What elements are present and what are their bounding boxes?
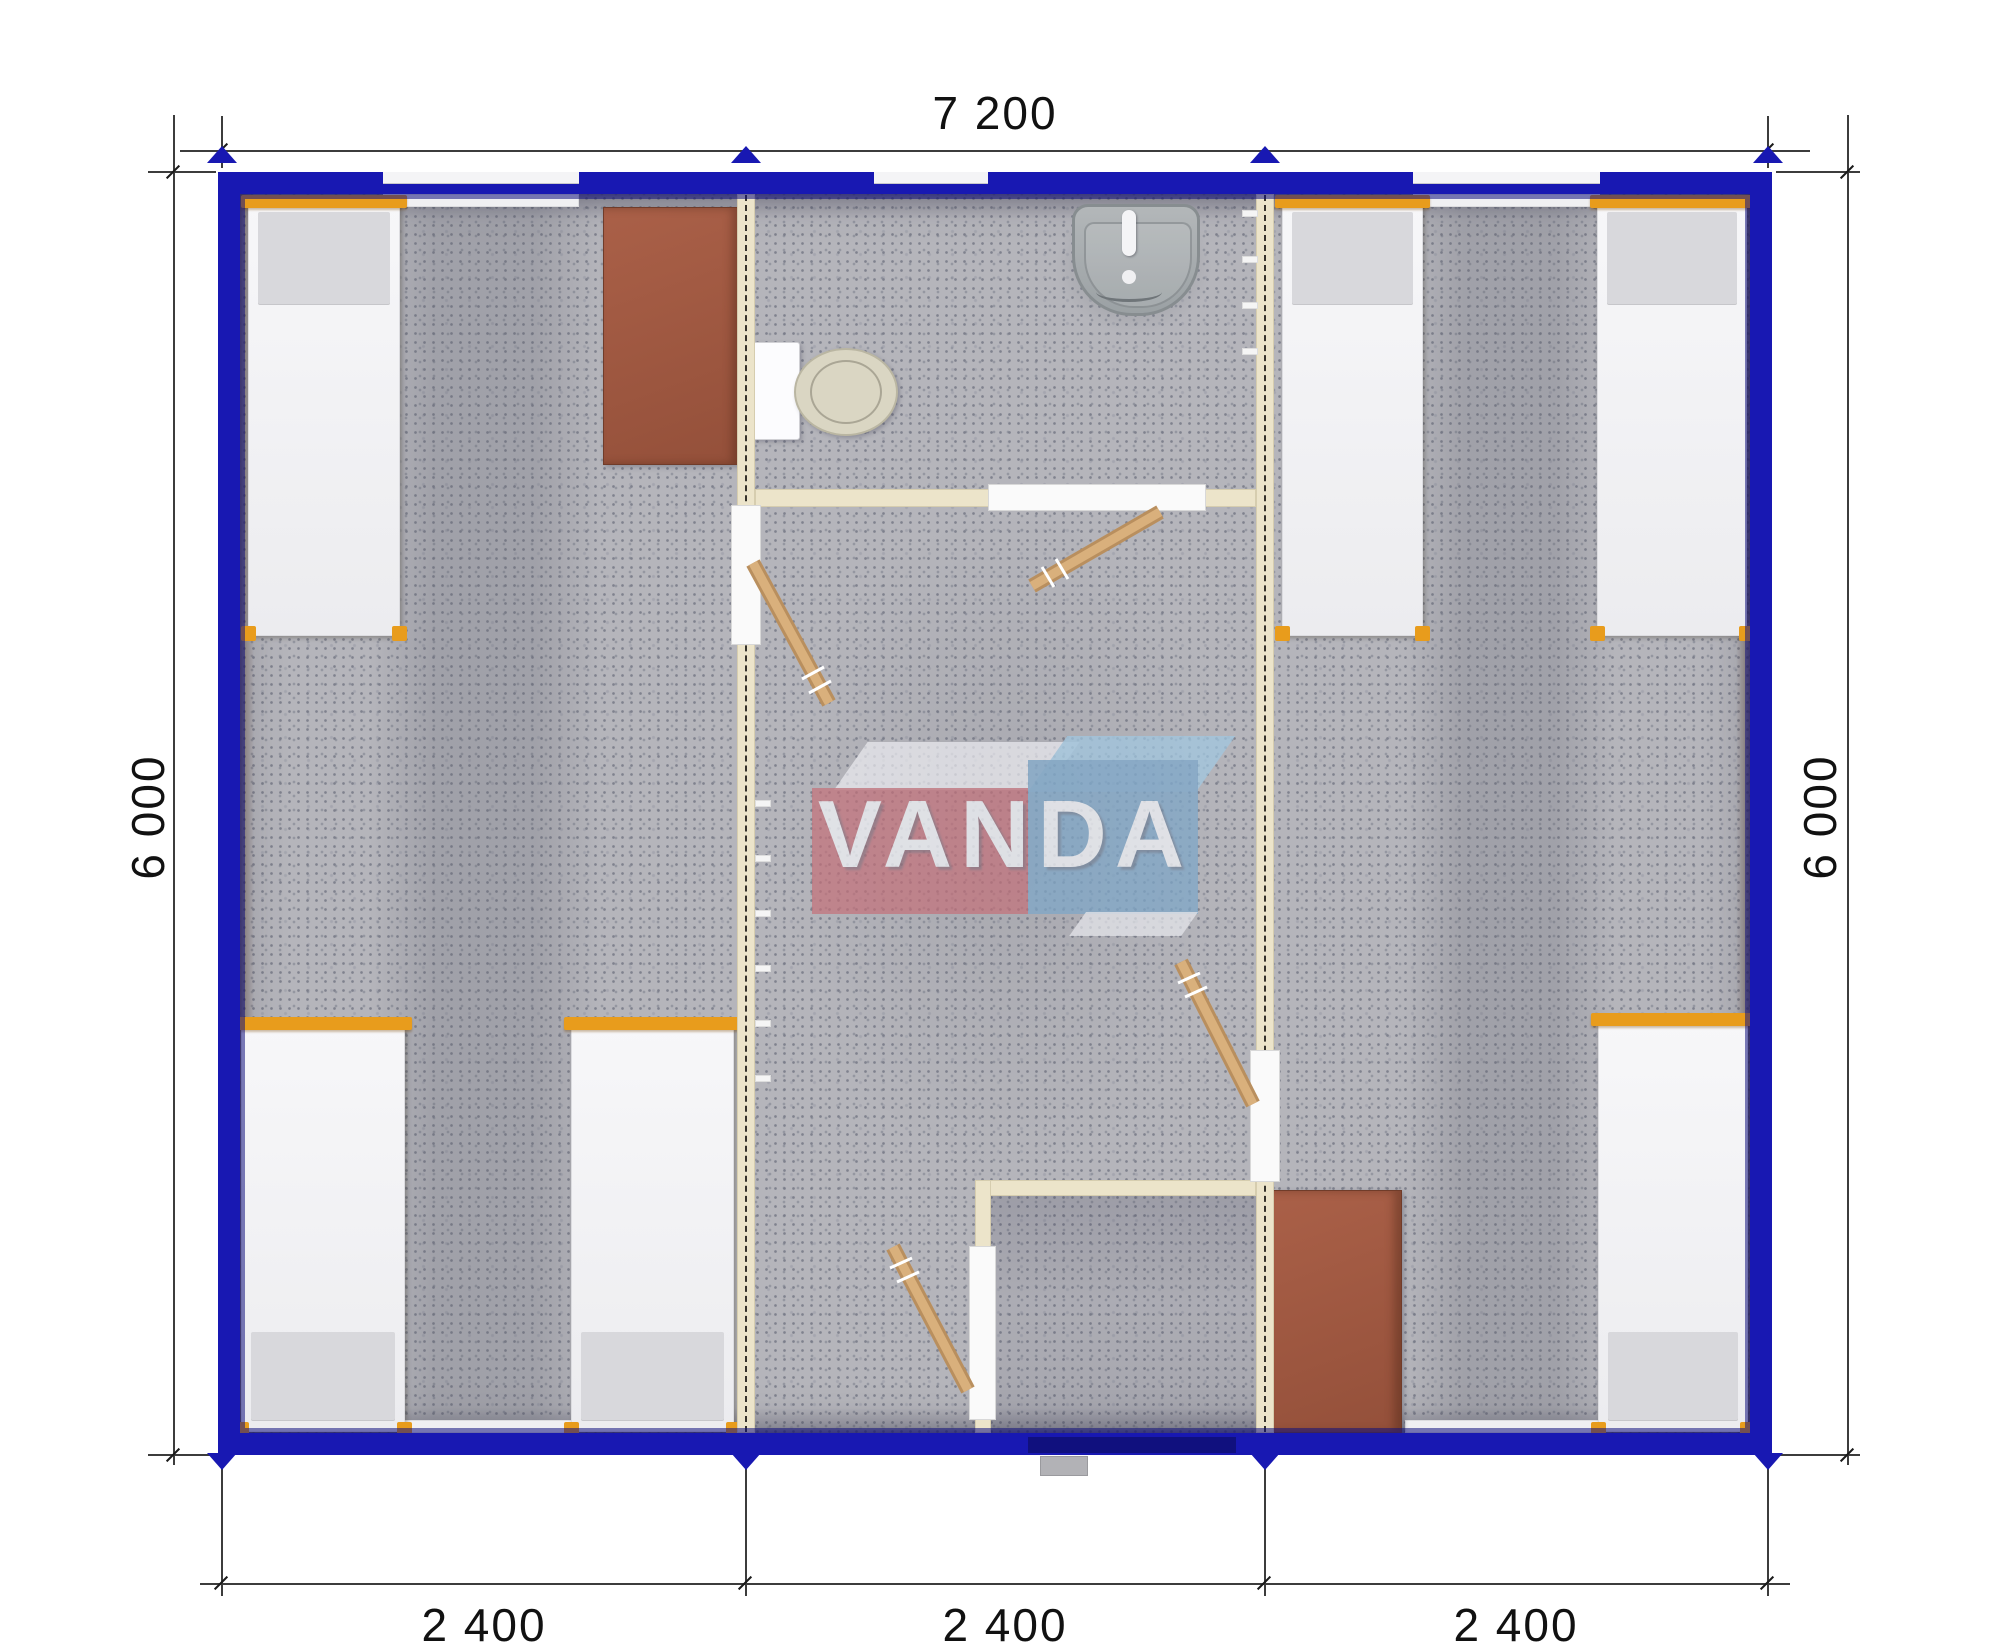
window-top-room1 — [383, 172, 579, 184]
module-joint-triangle — [1250, 1453, 1280, 1470]
entrance-threshold — [1028, 1437, 1236, 1453]
module-joint-triangle — [731, 146, 761, 163]
floor-plan-canvas: 7 200 6 000 6 000 2 400 2 400 2 400 VAND… — [0, 0, 2000, 1648]
window-top-room3 — [1413, 172, 1600, 184]
module-joint-triangle — [1753, 146, 1783, 163]
building-outline — [218, 172, 1772, 1455]
module-joint-triangle — [1250, 146, 1280, 163]
window-top-bathroom — [874, 172, 988, 184]
module-joint-triangle — [1753, 1453, 1783, 1470]
module-joint-triangle — [731, 1453, 761, 1470]
module-joint-triangle — [207, 146, 237, 163]
module-joint-triangle — [207, 1453, 237, 1470]
entrance-step — [1040, 1456, 1088, 1476]
